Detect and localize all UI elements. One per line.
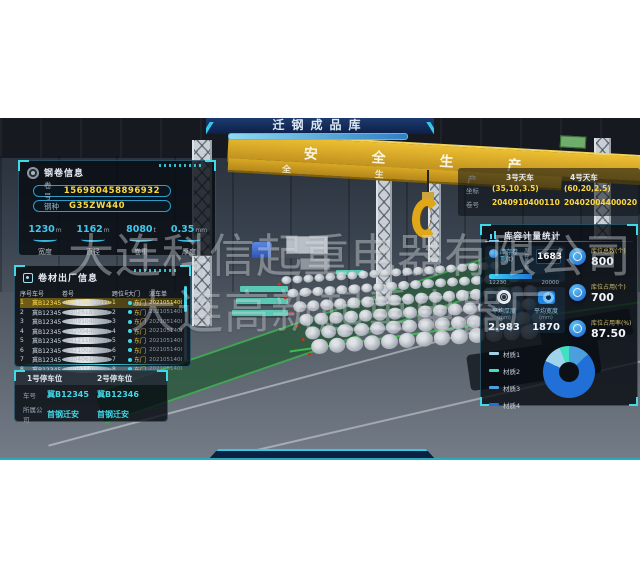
coil-metrics: 1230m宽度1162m直径8080t卷重0.35mm厚度 (21, 217, 215, 257)
cell-bay: 2 (112, 309, 128, 316)
slot1-plate: 冀B12345 (47, 389, 97, 400)
gauge-badge-icon (569, 284, 586, 301)
kpi-total-slots: 库位总数(个) 800 (569, 246, 637, 278)
warehouse-3d-viewport[interactable]: 安全生产 全生产 迁钢成品库 钢卷信息 (0, 118, 640, 460)
scrollbar-thumb[interactable] (184, 286, 187, 312)
gate-name: 东门 (134, 336, 146, 345)
cell-truck: 冀B12345 (32, 336, 62, 345)
table-row[interactable]: 5冀B1234520412116000105东门202105140001 (20, 336, 182, 346)
coil-number-label: 卷号 (44, 180, 54, 202)
kpi-occupancy-rate: 库位占用率(%) 87.50 (569, 318, 637, 350)
cell-no: 4 (20, 328, 32, 335)
coil-info-title: 钢卷信息 (44, 166, 84, 179)
metric-value: 0.35 (171, 224, 194, 235)
legend-item[interactable]: 材质3 (489, 379, 520, 396)
inventory-gauge-icon (489, 249, 498, 258)
metric-value-line: 1230m (21, 217, 69, 236)
cell-bay: 7 (112, 356, 128, 363)
inventory-weight-label: 库存卷重(t) (500, 249, 522, 263)
steel-grade-value: G35ZW440 (69, 201, 125, 211)
metric-value-line: 0.35mm (165, 217, 213, 236)
slot2-company: 首钢迁安 (97, 409, 129, 420)
crane3-title: 3号天车 (506, 172, 534, 183)
cell-order: 202105140001 (149, 328, 182, 334)
column-header: 车号 (32, 289, 62, 298)
crane-status-panel: 3号天车 4号天车 坐标 (35,10,3.5) (60,20,2.5) 卷号 … (458, 168, 640, 216)
truck-cab (252, 242, 272, 258)
gate-name: 东门 (134, 355, 146, 364)
cell-gate: 东门 (128, 317, 149, 326)
gate-name: 东门 (134, 317, 146, 326)
metric-value-line: 1162m (69, 217, 117, 236)
cell-coil: 2040910400110 (62, 318, 112, 325)
gauge-badge-icon (569, 320, 586, 337)
column-header: 大门 (128, 289, 149, 298)
cell-truck: 冀B12345 (32, 317, 62, 326)
kpi-label: 库位占用(个) (591, 282, 626, 291)
metric-arc (129, 237, 153, 242)
chart-icon (489, 231, 499, 241)
parking-header-row: 1号停车位 2号停车位 (15, 371, 167, 385)
panel-corner-accent (480, 397, 489, 406)
panel-dotted-accent (159, 164, 203, 167)
shipment-doc-icon (23, 273, 33, 283)
cell-gate: 东门 (128, 346, 149, 355)
coil-target-icon (27, 167, 39, 179)
gauge-max: 20000 (542, 280, 560, 286)
cell-gate: 东门 (128, 308, 149, 317)
shipment-title: 卷材出厂信息 (38, 271, 98, 284)
inventory-count-value: 1683 (536, 249, 561, 264)
metric-label: 卷重 (117, 247, 165, 257)
gate-name: 东门 (134, 327, 146, 336)
banner-edge-accent (426, 122, 434, 134)
cell-order: 202105140001 (149, 357, 182, 363)
storage-crate (300, 258, 330, 270)
cell-truck: 冀B12345 (32, 346, 62, 355)
coil-marker-red (302, 338, 305, 341)
table-row[interactable]: 4冀B1234520420044000204东门202105140001 (20, 327, 182, 337)
inventory-gauge-bar (489, 274, 559, 279)
avg-thickness-card: 平均厚度 (mm) 2.983 (485, 287, 523, 333)
table-header-row: 序号车号卷号跨位号大门派车单 (20, 288, 182, 298)
cell-coil: 2041211600010 (62, 337, 112, 344)
kpi-value: 800 (591, 255, 614, 268)
coil-rack (236, 298, 288, 304)
kpi-value: 700 (591, 291, 614, 304)
gate-name: 东门 (134, 298, 146, 307)
avg-thickness-unit: (mm) (485, 315, 523, 321)
legend-label: 材质4 (503, 400, 520, 410)
avg-width-value: 1870 (527, 322, 565, 333)
crane4-coord: (60,20,2.5) (564, 184, 611, 193)
panel-corner-accent (629, 397, 638, 406)
legend-item[interactable]: 材质2 (489, 362, 520, 379)
location-pin-icon (128, 358, 132, 362)
panel-dotted-accent (134, 269, 178, 272)
storage-crate (286, 236, 328, 254)
location-pin-icon (128, 339, 132, 343)
parking-panel: 1号停车位 2号停车位 车号 冀B12345 冀B12346 所属公司 首钢迁安… (14, 370, 168, 422)
legend-swatch (489, 386, 499, 389)
coil-metric: 1162m直径 (69, 217, 117, 257)
metric-label: 厚度 (165, 247, 213, 257)
crane4-coil: 20402004400020 (564, 198, 637, 207)
avg-width-card: 平均宽度 (mm) 1870 (527, 287, 565, 333)
steel-grade-label: 钢种 (44, 201, 59, 212)
table-row[interactable]: 6冀B1234520421002001306东门202105140001 (20, 346, 182, 356)
kpi-label: 库位总数(个) (591, 246, 626, 255)
material-legend: 材质1材质2材质3材质4 (489, 345, 520, 413)
table-row[interactable]: 3冀B1234520409104001103东门202105140001 (20, 317, 182, 327)
banner-edge-accent (206, 122, 214, 134)
warehouse-title: 迁钢成品库 (272, 118, 367, 132)
cell-truck: 冀B12345 (32, 308, 62, 317)
coil-info-panel: 钢卷信息 卷号 156980458896932 钢种 G35ZW440 1230… (18, 160, 216, 256)
coord-label: 坐标 (466, 185, 479, 195)
metric-arc (81, 237, 105, 242)
gauge-badge-icon (569, 248, 586, 265)
cell-coil: 2042004400020 (62, 328, 112, 335)
coil-rack (232, 310, 288, 316)
coil-ring-icon (497, 290, 511, 304)
cell-coil: 2030261830012 (62, 309, 112, 316)
table-row[interactable]: 2冀B1234520302618300122东门202105140001 (20, 308, 182, 318)
column-header: 派车单 (149, 289, 182, 298)
coil-cylinder-icon (538, 291, 555, 304)
cell-no: 7 (20, 356, 32, 363)
metric-value: 1230 (28, 224, 54, 235)
parking-company-row: 所属公司 首钢迁安 首钢迁安 (15, 404, 167, 424)
gauge-current: 12230 (489, 280, 507, 286)
column-header: 序号 (20, 289, 32, 298)
inventory-count-label: 库存卷数 (524, 249, 534, 271)
bottom-nav-bar[interactable] (208, 449, 436, 460)
cell-truck: 冀B12345 (32, 327, 62, 336)
coil-metric: 1230m宽度 (21, 217, 69, 257)
metric-value: 8080 (126, 224, 152, 235)
kpi-value: 87.50 (591, 327, 626, 340)
cell-gate: 东门 (128, 336, 149, 345)
slot1-company: 首钢迁安 (47, 409, 97, 420)
metric-unit: m (56, 227, 62, 234)
kpi-occupied-slots: 库位占用(个) 700 (569, 282, 637, 314)
steel-grade-field[interactable]: 钢种 G35ZW440 (33, 200, 171, 212)
legend-label: 材质3 (503, 383, 520, 393)
parking-slot2-title: 2号停车位 (97, 373, 132, 384)
shipment-panel: 卷材出厂信息 序号车号卷号跨位号大门派车单1冀B1234520411007501… (14, 265, 191, 367)
cell-no: 1 (20, 299, 32, 306)
parking-plate-row: 车号 冀B12345 冀B12346 (15, 389, 167, 400)
metric-value-line: 8080t (117, 217, 165, 236)
legend-swatch (489, 369, 499, 372)
cell-truck: 冀B12345 (32, 298, 62, 307)
location-pin-icon (128, 320, 132, 324)
legend-swatch (489, 352, 499, 355)
cell-order: 202105140001 (149, 319, 182, 325)
plate-label: 车号 (23, 390, 47, 400)
column-header: 跨位号 (112, 289, 128, 298)
coil-marker-red (308, 352, 311, 355)
cell-truck: 冀B12345 (32, 355, 62, 364)
metric-label: 宽度 (21, 247, 69, 257)
metric-unit: t (154, 227, 156, 234)
coil-metric: 0.35mm厚度 (165, 217, 213, 257)
cell-gate: 东门 (128, 355, 149, 364)
gauge-fill (489, 274, 532, 279)
slot2-plate: 冀B12346 (97, 389, 139, 400)
avg-thickness-value: 2.983 (485, 322, 523, 333)
coilno-label: 卷号 (466, 199, 479, 209)
cell-bay: 6 (112, 347, 128, 354)
table-row[interactable]: 1冀B1234520411007501101东门202105140001 (20, 298, 182, 308)
crane-trolley (560, 135, 587, 148)
gate-name: 东门 (134, 346, 146, 355)
legend-label: 材质1 (503, 349, 520, 359)
material-donut-chart[interactable] (543, 346, 595, 398)
cell-order: 202105140001 (149, 347, 182, 353)
cell-coil: 2042100200130 (62, 347, 112, 354)
cell-coil: 2041100750110 (62, 299, 112, 306)
banner-progress-bar (228, 133, 408, 140)
coil-marker-red (290, 310, 293, 313)
crane4-title: 4号天车 (570, 172, 598, 183)
cell-order: 202105140001 (149, 338, 182, 344)
header-underline (485, 241, 633, 242)
coil-number-value: 156980458896932 (64, 186, 160, 196)
avg-thickness-label: 平均厚度 (485, 306, 523, 315)
inventory-card: 库存卷重(t) 库存卷数 1683 12230 20000 (485, 246, 565, 282)
coil-metric: 8080t卷重 (117, 217, 165, 257)
metric-unit: m (104, 227, 110, 234)
metric-value: 1162 (76, 224, 102, 235)
company-label: 所属公司 (23, 404, 47, 424)
screenshot-stage: 安全生产 全生产 迁钢成品库 钢卷信息 (0, 0, 640, 580)
cell-no: 6 (20, 347, 32, 354)
warehouse-title-banner: 迁钢成品库 (206, 118, 434, 134)
gate-name: 东门 (134, 308, 146, 317)
table-scrollbar[interactable] (184, 286, 187, 361)
cell-coil: 2030406100010 (62, 356, 112, 363)
storage-stats-panel: 库容计量统计 库存卷重(t) 库存卷数 1683 12230 20000 平均厚 (480, 224, 638, 406)
crane3-coil: 2040910400110 (492, 198, 560, 207)
cell-no: 2 (20, 309, 32, 316)
parking-slot1-title: 1号停车位 (27, 373, 97, 384)
cell-bay: 3 (112, 318, 128, 325)
legend-item[interactable]: 材质1 (489, 345, 520, 362)
metric-unit: mm (195, 227, 207, 234)
metric-arc (33, 237, 57, 242)
cell-bay: 4 (112, 328, 128, 335)
cell-gate: 东门 (128, 298, 149, 307)
shipment-table: 序号车号卷号跨位号大门派车单1冀B1234520411007501101东门20… (20, 288, 182, 374)
coil-marker-red (284, 296, 287, 299)
column-header: 卷号 (62, 289, 112, 298)
panel-bottom-accent (21, 364, 184, 365)
legend-swatch (489, 403, 499, 406)
legend-label: 材质2 (503, 366, 520, 376)
coil-rack (240, 286, 288, 292)
cell-bay: 1 (112, 299, 128, 306)
avg-width-unit: (mm) (527, 315, 565, 321)
cell-no: 3 (20, 318, 32, 325)
avg-width-label: 平均宽度 (527, 306, 565, 315)
location-pin-icon (128, 310, 132, 314)
location-pin-icon (128, 329, 132, 333)
cell-gate: 东门 (128, 327, 149, 336)
location-pin-icon (128, 301, 132, 305)
location-pin-icon (128, 348, 132, 352)
coil-number-field[interactable]: 卷号 156980458896932 (33, 185, 171, 197)
coil-marker-red (296, 324, 299, 327)
legend-item[interactable]: 材质4 (489, 396, 520, 413)
kpi-label: 库位占用率(%) (591, 318, 631, 327)
crane3-coord: (35,10,3.5) (492, 184, 539, 193)
cell-order: 202105140001 (149, 300, 182, 306)
cell-no: 5 (20, 337, 32, 344)
metric-label: 直径 (69, 247, 117, 257)
cell-bay: 5 (112, 337, 128, 344)
metric-arc (177, 237, 201, 242)
cell-order: 202105140001 (149, 309, 182, 315)
